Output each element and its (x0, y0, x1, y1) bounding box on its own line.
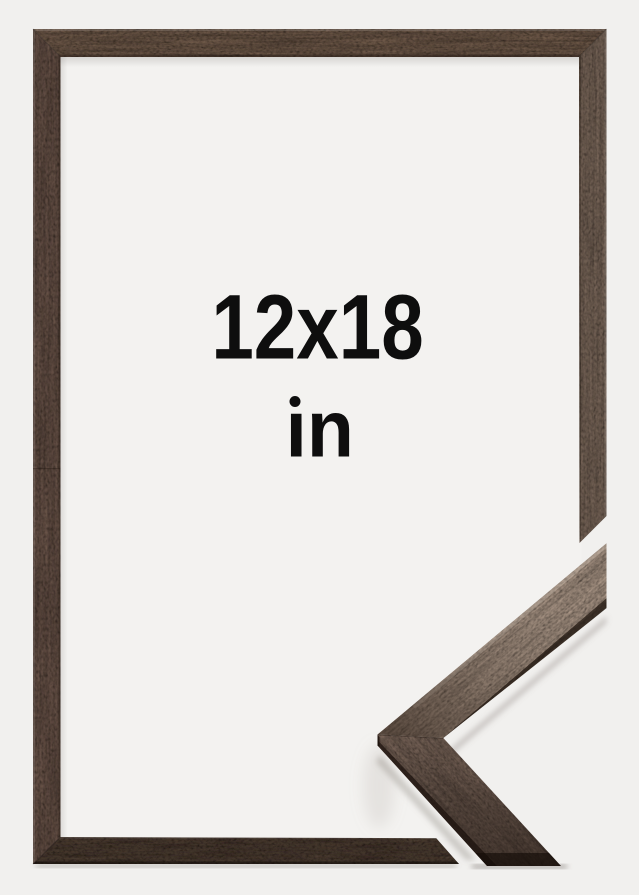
svg-text:12x18: 12x18 (211, 275, 423, 378)
